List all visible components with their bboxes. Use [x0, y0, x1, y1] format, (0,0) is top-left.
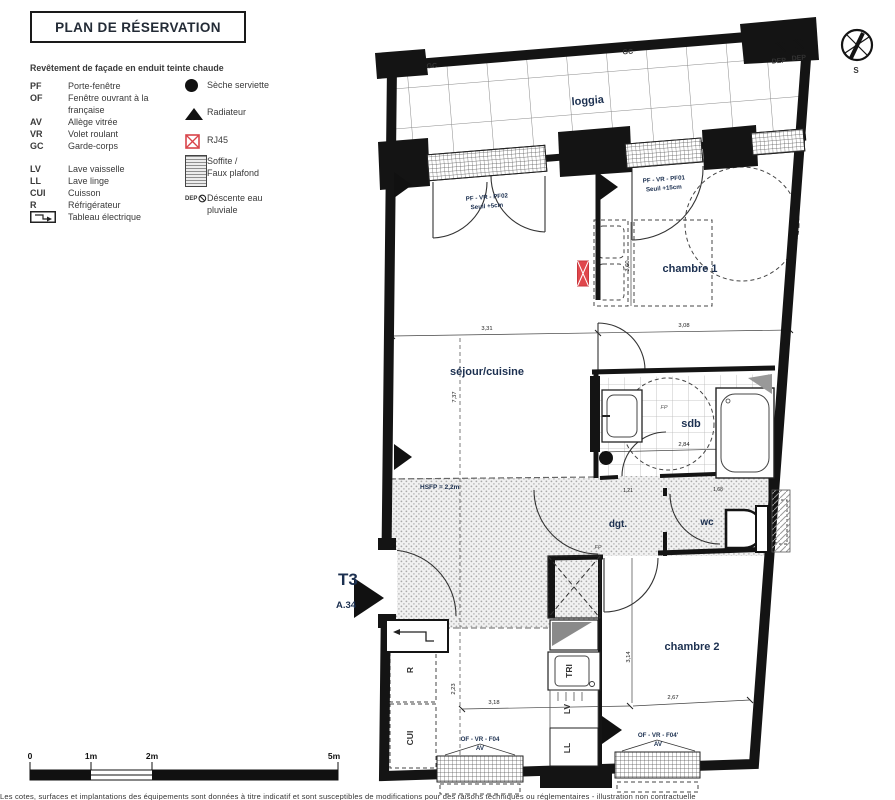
- window-label: OF - VR - F04: [461, 736, 500, 743]
- window-label: Seuil +5cm: [470, 202, 503, 212]
- room-label-chambre1: chambre 1: [662, 263, 717, 275]
- dim-label: 2,67: [667, 695, 678, 701]
- duct: [772, 490, 790, 552]
- radiator-icon: [600, 174, 618, 200]
- towel-dryer-symbol: [599, 451, 613, 465]
- footer-disclaimer: Les cotes, surfaces et implantations des…: [0, 792, 895, 800]
- scale-tick-0: 0: [28, 751, 33, 761]
- scale-tick-2m: 2m: [146, 751, 159, 761]
- unit-type-label: T3: [338, 570, 358, 589]
- compass-south-label: S: [853, 66, 859, 75]
- gc-label: GC: [622, 49, 633, 57]
- fp-label: FP: [594, 545, 601, 551]
- bathtub: [716, 388, 774, 478]
- scale-tick-1m: 1m: [85, 751, 98, 761]
- dim-label: 2,84: [678, 442, 690, 448]
- scale-bar: 0 1m 2m 5m: [28, 751, 341, 780]
- dim-label: 7,37: [452, 391, 458, 402]
- appliance-label-r: R: [405, 667, 415, 673]
- dim-label: 3,18: [488, 700, 499, 706]
- floor-plan-svg: loggia GC GC DEP DEP S chambre 1 séjour/…: [0, 0, 895, 800]
- window-label: Seuil +15cm: [646, 184, 683, 194]
- dep-label: DEP: [771, 57, 786, 65]
- window-label: AV: [654, 741, 663, 748]
- compass-icon: [842, 30, 872, 60]
- dim-label: 3,14: [626, 651, 632, 663]
- window-label: AV: [476, 745, 485, 752]
- room-label-sdb: sdb: [681, 418, 701, 430]
- plan-sheet: PLAN DE RÉSERVATION Revêtement de façade…: [0, 0, 895, 800]
- dim-label: 3,31: [481, 326, 492, 332]
- radiator-icon: [602, 716, 622, 744]
- room-label-sejour: séjour/cuisine: [450, 366, 524, 378]
- gc-label: GC: [426, 63, 437, 71]
- room-label-chambre2: chambre 2: [664, 641, 719, 653]
- window-label: OF - VR - F04': [638, 732, 679, 739]
- dim-label: 3,08: [678, 323, 689, 329]
- dim-label: 3,60: [625, 260, 631, 271]
- fp-label: FP: [660, 405, 667, 411]
- radiator-icon: [394, 444, 412, 470]
- dim-label: 1,68: [713, 487, 723, 493]
- dim-label: 2,23: [451, 683, 457, 694]
- appliance-label-tri: TRI: [564, 664, 574, 678]
- dim-label: 1,21: [623, 488, 633, 494]
- entry-door-gap: [377, 550, 397, 614]
- appliance-label-cui: CUI: [405, 731, 415, 746]
- appliance-label-lv: LV: [562, 704, 572, 715]
- room-label-wc: wc: [699, 517, 714, 528]
- appliance-label-ll: LL: [562, 743, 572, 753]
- room-label-dgt: dgt.: [609, 519, 628, 530]
- scale-tick-5m: 5m: [328, 751, 341, 761]
- dep-label: DEP: [791, 54, 806, 62]
- rj45-outlet: [578, 261, 589, 286]
- hsfp-label: HSFP = 2,2m: [420, 484, 460, 491]
- unit-lot-label: A.34: [336, 600, 357, 611]
- electrical-panel: [386, 620, 448, 652]
- washing-machine: [550, 728, 598, 766]
